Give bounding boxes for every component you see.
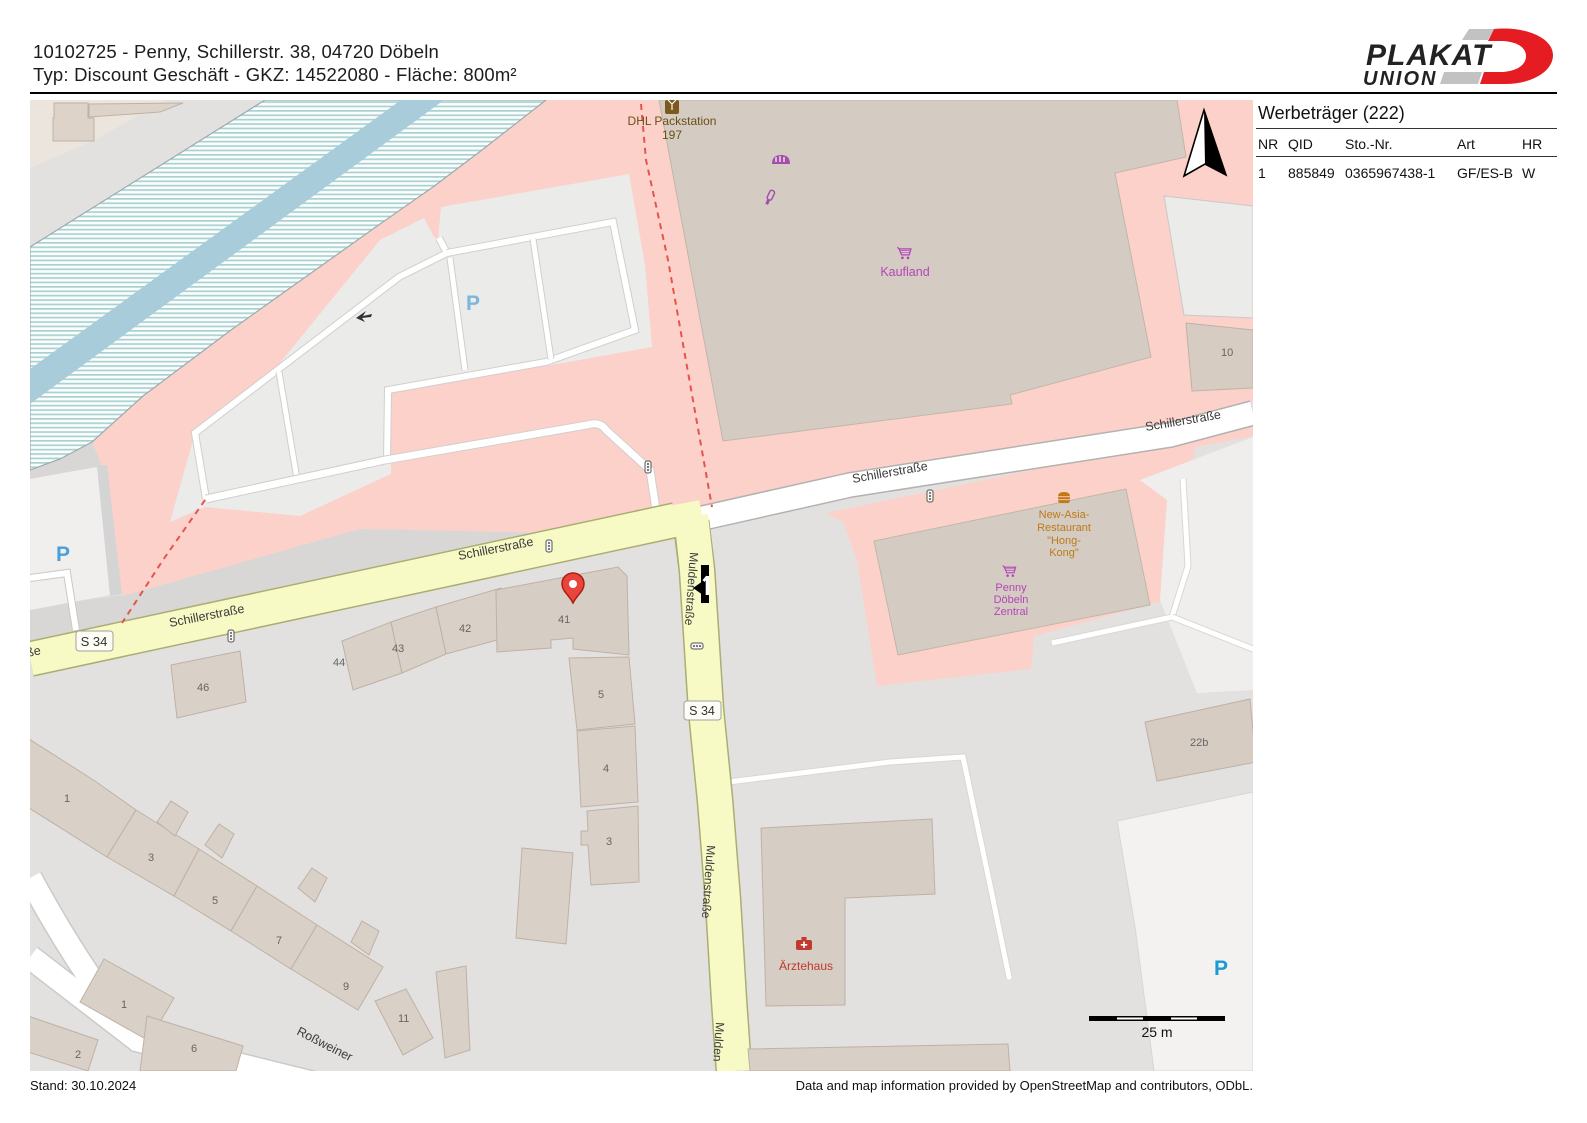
svg-text:Kaufland: Kaufland: [880, 265, 929, 279]
svg-text:22b: 22b: [1190, 737, 1208, 749]
svg-text:Kong": Kong": [1049, 547, 1079, 559]
svg-text:P: P: [1214, 957, 1228, 980]
svg-text:5: 5: [598, 689, 604, 701]
svg-text:S 34: S 34: [81, 634, 108, 649]
svg-text:2: 2: [75, 1049, 81, 1061]
svg-text:S 34: S 34: [689, 704, 715, 718]
svg-text:New-Asia-: New-Asia-: [1039, 509, 1090, 521]
svg-text:10: 10: [1221, 347, 1233, 359]
svg-text:"Hong-: "Hong-: [1047, 535, 1081, 547]
svg-text:P: P: [466, 292, 480, 315]
svg-text:DHL Packstation: DHL Packstation: [628, 114, 717, 128]
svg-text:25 m: 25 m: [1141, 1024, 1172, 1040]
svg-text:44: 44: [333, 657, 345, 669]
svg-text:3: 3: [606, 836, 612, 848]
svg-text:43: 43: [392, 643, 404, 655]
svg-text:Restaurant: Restaurant: [1037, 522, 1091, 534]
svg-text:41: 41: [558, 614, 570, 626]
svg-text:9: 9: [343, 981, 349, 993]
svg-text:4: 4: [603, 763, 609, 775]
svg-text:1: 1: [121, 999, 127, 1011]
svg-text:11: 11: [398, 1013, 409, 1025]
svg-text:1: 1: [64, 793, 70, 805]
svg-text:42: 42: [459, 623, 471, 635]
svg-text:P: P: [56, 543, 70, 566]
svg-text:Penny: Penny: [995, 582, 1027, 594]
svg-text:UNION: UNION: [1363, 68, 1437, 90]
svg-text:3: 3: [148, 852, 154, 864]
svg-text:6: 6: [191, 1043, 197, 1055]
svg-text:Ärztehaus: Ärztehaus: [779, 959, 833, 973]
svg-text:Zentral: Zentral: [994, 606, 1028, 618]
svg-text:46: 46: [197, 682, 209, 694]
svg-text:5: 5: [212, 895, 218, 907]
svg-text:Mulden: Mulden: [710, 1022, 727, 1062]
svg-text:7: 7: [276, 935, 282, 947]
svg-text:197: 197: [662, 128, 682, 142]
svg-text:Döbeln: Döbeln: [994, 594, 1029, 606]
